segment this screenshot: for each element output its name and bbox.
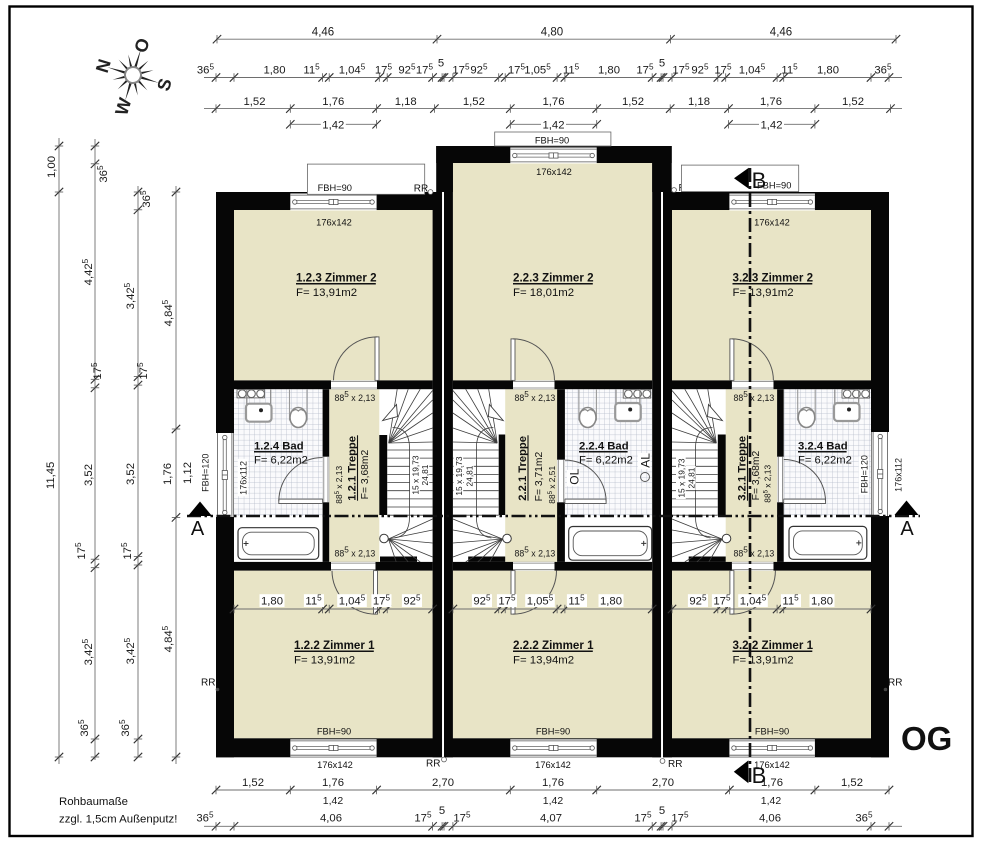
svg-text:OL: OL bbox=[567, 468, 581, 484]
svg-text:1,52: 1,52 bbox=[242, 777, 264, 789]
svg-text:F= 13,91m2: F= 13,91m2 bbox=[733, 655, 794, 667]
svg-text:1,76: 1,76 bbox=[542, 777, 564, 789]
svg-text:176x112: 176x112 bbox=[894, 458, 904, 492]
svg-text:1,80: 1,80 bbox=[600, 596, 622, 608]
svg-text:885 x 2,13: 885 x 2,13 bbox=[334, 466, 344, 504]
svg-text:1,52: 1,52 bbox=[463, 96, 485, 108]
svg-text:5: 5 bbox=[659, 805, 665, 817]
svg-text:11,45: 11,45 bbox=[45, 462, 57, 489]
svg-text:2,70: 2,70 bbox=[432, 777, 454, 789]
svg-text:4,07: 4,07 bbox=[540, 813, 562, 825]
svg-text:F= 6,22m2: F= 6,22m2 bbox=[798, 455, 852, 467]
svg-text:FBH=120: FBH=120 bbox=[201, 454, 211, 492]
svg-text:F= 3,71m2: F= 3,71m2 bbox=[534, 452, 545, 502]
svg-text:15 x 19,73: 15 x 19,73 bbox=[411, 455, 421, 494]
svg-text:4,46: 4,46 bbox=[770, 27, 792, 39]
svg-text:1.2.4 Bad: 1.2.4 Bad bbox=[254, 441, 304, 453]
svg-text:1,12: 1,12 bbox=[182, 462, 194, 484]
svg-text:F= 18,01m2: F= 18,01m2 bbox=[513, 287, 574, 299]
svg-text:F= 6,22m2: F= 6,22m2 bbox=[254, 455, 308, 467]
svg-text:F= 13,91m2: F= 13,91m2 bbox=[296, 287, 357, 299]
svg-text:FBH=90: FBH=90 bbox=[318, 183, 352, 193]
svg-text:FBH=120: FBH=120 bbox=[860, 455, 870, 493]
svg-text:F= 6,22m2: F= 6,22m2 bbox=[579, 455, 633, 467]
svg-text:2,70: 2,70 bbox=[652, 777, 674, 789]
svg-text:1,76: 1,76 bbox=[760, 96, 782, 108]
svg-text:176x112: 176x112 bbox=[239, 461, 249, 495]
svg-text:F= 13,94m2: F= 13,94m2 bbox=[513, 655, 574, 667]
svg-text:zzgl. 1,5cm Außenputz!: zzgl. 1,5cm Außenputz! bbox=[59, 814, 177, 826]
svg-text:1,18: 1,18 bbox=[395, 96, 417, 108]
svg-text:4,46: 4,46 bbox=[312, 27, 334, 39]
svg-text:1,52: 1,52 bbox=[622, 96, 644, 108]
svg-text:1,76: 1,76 bbox=[322, 777, 344, 789]
svg-text:1,80: 1,80 bbox=[811, 596, 833, 608]
svg-text:A: A bbox=[900, 518, 914, 540]
svg-text:1,42: 1,42 bbox=[761, 795, 782, 807]
svg-text:1,52: 1,52 bbox=[244, 96, 266, 108]
svg-text:RR: RR bbox=[414, 184, 428, 195]
svg-text:885 x 2,51: 885 x 2,51 bbox=[547, 466, 557, 504]
svg-text:2.2.3 Zimmer 2: 2.2.3 Zimmer 2 bbox=[513, 272, 594, 285]
svg-text:1.2.2 Zimmer 1: 1.2.2 Zimmer 1 bbox=[294, 639, 375, 652]
svg-text:FBH=90: FBH=90 bbox=[317, 727, 351, 737]
svg-text:RR: RR bbox=[201, 678, 215, 689]
svg-text:5: 5 bbox=[439, 805, 445, 817]
svg-text:24,81: 24,81 bbox=[420, 464, 430, 485]
svg-text:FBH=90: FBH=90 bbox=[755, 727, 789, 737]
svg-text:24,81: 24,81 bbox=[465, 465, 475, 486]
svg-text:3,52: 3,52 bbox=[83, 464, 95, 486]
svg-text:3.2.1 Treppe: 3.2.1 Treppe bbox=[737, 436, 749, 501]
svg-text:885 x 2,13: 885 x 2,13 bbox=[763, 465, 773, 503]
svg-text:1,76: 1,76 bbox=[162, 463, 174, 485]
svg-text:2.2.1 Treppe: 2.2.1 Treppe bbox=[517, 436, 529, 501]
svg-text:1,42: 1,42 bbox=[761, 119, 783, 131]
svg-text:1,42: 1,42 bbox=[322, 119, 344, 131]
svg-text:3.2.2 Zimmer 1: 3.2.2 Zimmer 1 bbox=[733, 639, 814, 652]
svg-text:176x142: 176x142 bbox=[754, 218, 790, 228]
svg-text:1,80: 1,80 bbox=[817, 65, 839, 77]
svg-text:176x142: 176x142 bbox=[316, 218, 352, 228]
svg-text:3.2.4 Bad: 3.2.4 Bad bbox=[798, 441, 848, 453]
svg-text:Rohbaumaße: Rohbaumaße bbox=[59, 796, 128, 808]
svg-text:176x142: 176x142 bbox=[536, 167, 572, 177]
svg-text:5: 5 bbox=[659, 58, 665, 70]
svg-text:5: 5 bbox=[438, 58, 444, 70]
svg-text:1.2.3 Zimmer 2: 1.2.3 Zimmer 2 bbox=[296, 272, 377, 285]
svg-text:1.2.1 Treppe: 1.2.1 Treppe bbox=[347, 436, 359, 501]
svg-text:3,52: 3,52 bbox=[125, 463, 137, 485]
svg-text:2.2.4 Bad: 2.2.4 Bad bbox=[579, 441, 629, 453]
svg-text:OG: OG bbox=[901, 720, 952, 757]
svg-text:F= 13,91m2: F= 13,91m2 bbox=[294, 655, 355, 667]
svg-text:1,80: 1,80 bbox=[598, 65, 620, 77]
svg-text:24,81: 24,81 bbox=[687, 467, 697, 488]
svg-text:1,18: 1,18 bbox=[688, 96, 710, 108]
svg-text:RR: RR bbox=[668, 759, 682, 770]
svg-text:1,76: 1,76 bbox=[322, 96, 344, 108]
svg-text:1,52: 1,52 bbox=[842, 96, 864, 108]
svg-text:1,76: 1,76 bbox=[761, 777, 783, 789]
svg-text:1,42: 1,42 bbox=[543, 795, 564, 807]
svg-text:FBH=90: FBH=90 bbox=[536, 727, 570, 737]
svg-text:A: A bbox=[191, 518, 205, 540]
svg-text:1,42: 1,42 bbox=[543, 119, 565, 131]
svg-text:RR: RR bbox=[888, 678, 902, 689]
svg-text:1,76: 1,76 bbox=[543, 96, 565, 108]
svg-text:B: B bbox=[752, 168, 767, 193]
svg-text:F= 3,68m2: F= 3,68m2 bbox=[360, 450, 371, 500]
svg-text:F= 13,91m2: F= 13,91m2 bbox=[733, 287, 794, 299]
svg-text:1,80: 1,80 bbox=[264, 65, 286, 77]
svg-text:AL: AL bbox=[638, 453, 652, 468]
svg-text:RR: RR bbox=[426, 759, 440, 770]
svg-text:3.2.3 Zimmer 2: 3.2.3 Zimmer 2 bbox=[733, 272, 814, 285]
svg-text:15 x 19,73: 15 x 19,73 bbox=[677, 458, 687, 497]
svg-text:F= 3,68m2: F= 3,68m2 bbox=[751, 451, 762, 501]
svg-text:4,06: 4,06 bbox=[759, 813, 781, 825]
svg-text:1,00: 1,00 bbox=[46, 156, 58, 178]
svg-text:1,42: 1,42 bbox=[323, 795, 344, 807]
svg-text:4,06: 4,06 bbox=[320, 813, 342, 825]
svg-text:176x142: 176x142 bbox=[535, 760, 571, 770]
svg-text:1,80: 1,80 bbox=[261, 596, 283, 608]
svg-text:176x142: 176x142 bbox=[317, 760, 353, 770]
svg-text:15 x 19,73: 15 x 19,73 bbox=[454, 456, 464, 495]
svg-text:2.2.2 Zimmer 1: 2.2.2 Zimmer 1 bbox=[513, 639, 594, 652]
svg-text:1,52: 1,52 bbox=[841, 777, 863, 789]
svg-text:FBH=90: FBH=90 bbox=[535, 135, 569, 145]
svg-text:4,80: 4,80 bbox=[541, 27, 563, 39]
